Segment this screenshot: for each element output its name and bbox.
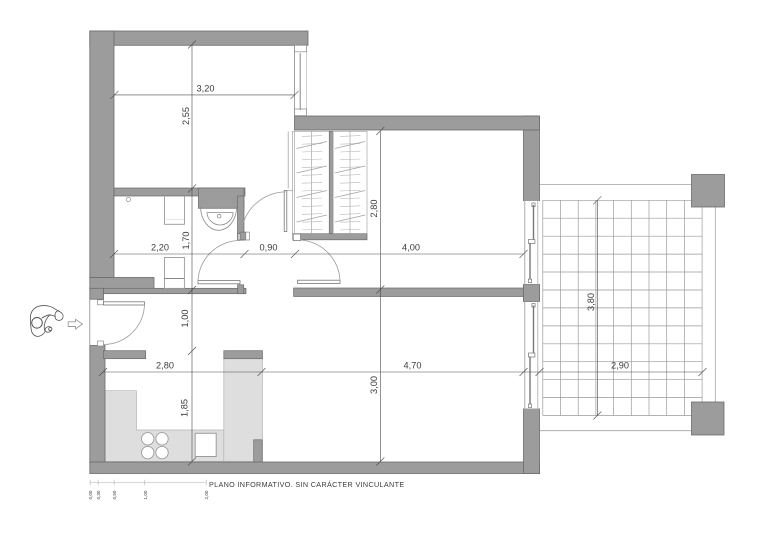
- svg-text:2,00: 2,00: [204, 490, 209, 499]
- svg-text:2,90: 2,90: [611, 361, 629, 371]
- svg-text:3,80: 3,80: [586, 293, 596, 311]
- svg-text:1,00: 1,00: [143, 490, 148, 499]
- svg-text:0,30: 0,30: [96, 490, 101, 499]
- svg-text:4,00: 4,00: [402, 243, 420, 253]
- svg-text:1,70: 1,70: [181, 232, 191, 250]
- svg-text:3,00: 3,00: [369, 376, 379, 394]
- svg-text:1,00: 1,00: [180, 310, 190, 328]
- svg-text:2,80: 2,80: [156, 361, 174, 371]
- svg-text:4,70: 4,70: [404, 361, 422, 371]
- svg-text:3,20: 3,20: [197, 84, 215, 94]
- svg-text:1,85: 1,85: [180, 399, 190, 417]
- svg-text:0,50: 0,50: [112, 490, 117, 499]
- svg-text:PLANO INFORMATIVO. SIN CARÁCTE: PLANO INFORMATIVO. SIN CARÁCTER VINCULAN…: [209, 480, 404, 489]
- svg-text:2,20: 2,20: [151, 243, 169, 253]
- svg-text:0,90: 0,90: [260, 243, 278, 253]
- svg-text:2,80: 2,80: [369, 200, 379, 218]
- svg-text:2,55: 2,55: [181, 107, 191, 125]
- svg-text:0,00: 0,00: [88, 490, 93, 499]
